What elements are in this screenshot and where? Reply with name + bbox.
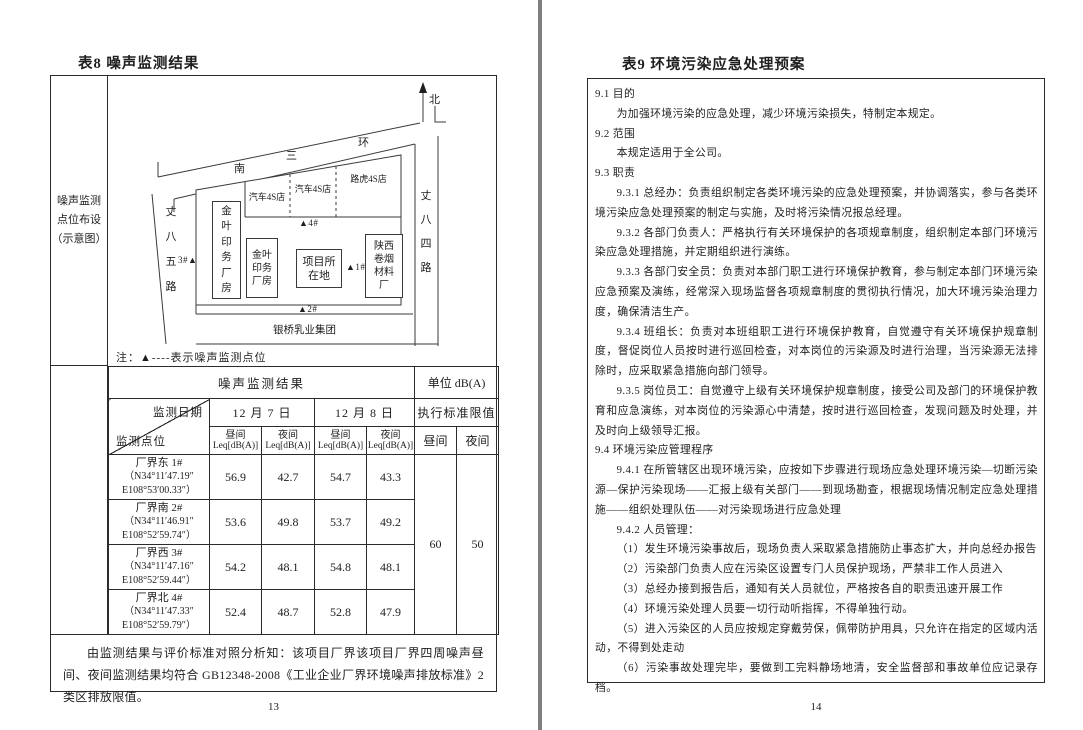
section-9-4-heading: 9.4 环境污染应管理程序 — [595, 441, 1038, 461]
point-2-cell: 厂界南 2# （N34°11′46.91″ E108°52′59.74″） — [109, 500, 210, 545]
clause-9-3-2: 9.3.2 各部门负责人：严格执行有关环境保护的各项规章制度，组织制定本部门环境… — [595, 224, 1038, 264]
north-arrow-head — [419, 82, 427, 93]
section-9-3-heading: 9.3 职责 — [595, 164, 1038, 184]
section-9-1-body: 为加强环境污染的应急处理，减少环境污染损失，特制定本规定。 — [595, 105, 1038, 125]
emergency-plan-frame: 9.1 目的 为加强环境污染的应急处理，减少环境污染损失，特制定本规定。 9.2… — [587, 78, 1045, 683]
clause-9-3-5: 9.3.5 岗位员工：自觉遵守上级有关环境保护规章制度，接受公司及部门的环境保护… — [595, 382, 1038, 441]
point-1-day2: 54.7 — [315, 455, 367, 500]
clause-9-3-1: 9.3.1 总经办：负责组织制定各类环境污染的应急处理预案，并协调落实，参与各类… — [595, 184, 1038, 224]
item-2: （2）污染部门负责人应在污染区设置专门人员保护现场，严禁非工作人员进入 — [595, 560, 1038, 580]
project-site-box: 项目所在地 — [296, 249, 342, 288]
table-header-cell: 噪声监测结果 — [109, 367, 415, 399]
subheader-day1: 昼间 Leq[dB(A)] — [210, 427, 262, 455]
limit-header: 执行标准限值 — [415, 399, 499, 427]
car-4s-shop-2: 汽车4S店 — [290, 182, 336, 195]
section-9-2-heading: 9.2 范围 — [595, 125, 1038, 145]
point-4-cell: 厂界北 4# （N34°11′47.33″ E108°52′59.79″） — [109, 590, 210, 635]
map-row-label: 噪声监测 点位布设 （示意图） — [51, 76, 108, 366]
top-road-char-huan: 环 — [358, 134, 369, 150]
monitor-point-4-marker: ▲4# — [299, 218, 318, 228]
point-2-day2: 53.7 — [315, 500, 367, 545]
jinye-printing-building-tall: 金叶印务厂房 — [212, 201, 241, 299]
monitor-point-3-marker: 3#▲ — [178, 255, 197, 265]
point-3-cell: 厂界西 3# （N34°11′47.16″ E108°52′59.44″） — [109, 545, 210, 590]
top-road-char-san: 三 — [286, 147, 297, 163]
unit-cell: 单位 dB(A) — [415, 367, 499, 399]
monitor-point-1-marker: ▲1# — [346, 262, 365, 272]
north-label: 北 — [429, 91, 440, 107]
limit-day-header: 昼间 — [415, 427, 457, 455]
map-row-label-line1: 噪声监测 — [57, 192, 101, 211]
date-header-dec8: 12 月 8 日 — [315, 399, 415, 427]
point-4-night2: 47.9 — [367, 590, 415, 635]
section-9-1-heading: 9.1 目的 — [595, 85, 1038, 105]
jinye-printing-building-small: 金叶印务厂房 — [246, 238, 278, 298]
item-3: （3）总经办接到报告后，通知有关人员就位，严格按各自的职责迅速开展工作 — [595, 580, 1038, 600]
item-5: （5）进入污染区的人员应按规定穿戴劳保，佩带防护用具，只允许在指定的区域内活动，… — [595, 620, 1038, 660]
road-corner-mark — [435, 106, 446, 122]
date-header-dec7: 12 月 7 日 — [210, 399, 315, 427]
point-4-day1: 52.4 — [210, 590, 262, 635]
noise-result-table-frame: 噪声监测 点位布设 （示意图） — [50, 75, 497, 692]
scanned-document-spread: 表8 噪声监测结果 噪声监测 点位布设 （示意图） — [0, 0, 1083, 730]
point-4-day2: 52.8 — [315, 590, 367, 635]
right-page-title: 表9 环境污染应急处理预案 — [622, 53, 805, 74]
landrover-4s-shop: 路虎4S店 — [336, 172, 401, 185]
monitor-point-2-marker: ▲2# — [298, 304, 317, 314]
left-road-label: 丈八五路 — [164, 200, 178, 300]
diagonal-point-label: 监测点位 — [116, 433, 166, 449]
dairy-group-label: 银桥乳业集团 — [196, 322, 413, 337]
clause-9-4-1: 9.4.1 在所管辖区出现环境污染，应按如下步骤进行现场应急处理环境污染—切断污… — [595, 461, 1038, 520]
point-2-day1: 53.6 — [210, 500, 262, 545]
section-9-2-body: 本规定适用于全公司。 — [595, 144, 1038, 164]
empty-label-cell — [51, 366, 108, 634]
table-header-title: 噪声监测结果 — [218, 377, 305, 391]
point-3-day1: 54.2 — [210, 545, 262, 590]
point-1-cell: 厂界东 1# （N34°11′47.19″ E108°53′00.33″） — [109, 455, 210, 500]
point-1-night2: 43.3 — [367, 455, 415, 500]
point-3-night1: 48.1 — [262, 545, 315, 590]
right-road-label: 丈八四路 — [419, 184, 433, 280]
left-page-title: 表8 噪声监测结果 — [78, 52, 199, 73]
point-4-night1: 48.7 — [262, 590, 315, 635]
noise-results-table: 噪声监测结果 单位 dB(A) 监测日期 监测点位 12 月 7 日 12 月 … — [108, 366, 499, 635]
page-divider — [538, 0, 542, 730]
diagonal-header-cell: 监测日期 监测点位 — [109, 399, 210, 455]
item-6: （6）污染事故处理完毕，要做到工完料静场地清，安全监督部和事故单位应记录存档。 — [595, 659, 1038, 699]
analysis-conclusion: 由监测结果与评价标准对照分析知：该项目厂界该项目厂界四周噪声昼间、夜间监测结果均… — [51, 634, 496, 692]
limit-night-value: 50 — [457, 455, 499, 635]
table-row: 厂界东 1# （N34°11′47.19″ E108°53′00.33″） 56… — [109, 455, 499, 500]
clause-9-3-4: 9.3.4 班组长：负责对本班组职工进行环境保护教育，自觉遵守有关环境保护规章制… — [595, 323, 1038, 382]
map-legend-note: 注：▲----表示噪声监测点位 — [116, 349, 267, 365]
top-road-char-nan: 南 — [234, 160, 245, 176]
car-4s-shop-1: 汽车4S店 — [244, 190, 290, 203]
point-1-night1: 42.7 — [262, 455, 315, 500]
map-row-label-line3: （示意图） — [52, 230, 107, 249]
item-1: （1）发生环境污染事故后，现场负责人采取紧急措施防止事态扩大，并向总经办报告 — [595, 540, 1038, 560]
clause-9-4-2: 9.4.2 人员管理： — [595, 521, 1038, 541]
point-2-night1: 49.8 — [262, 500, 315, 545]
point-2-night2: 49.2 — [367, 500, 415, 545]
clause-9-3-3: 9.3.3 各部门安全员：负责对本部门职工进行环境保护教育，参与制定本部门环境污… — [595, 263, 1038, 322]
subheader-night1: 夜间 Leq[dB(A)] — [262, 427, 315, 455]
map-row-label-line2: 点位布设 — [57, 211, 101, 230]
left-page-number: 13 — [50, 701, 497, 713]
diagonal-date-label: 监测日期 — [153, 404, 203, 420]
emergency-plan-body: 9.1 目的 为加强环境污染的应急处理，减少环境污染损失，特制定本规定。 9.2… — [588, 79, 1044, 699]
subheader-night2: 夜间 Leq[dB(A)] — [367, 427, 415, 455]
site-map: 北 南 三 环 丈八五路 丈八四路 汽车4S店 汽车4S店 路虎4S店 金叶印务… — [108, 76, 498, 366]
subheader-day2: 昼间 Leq[dB(A)] — [315, 427, 367, 455]
item-4: （4）环境污染处理人员要一切行动听指挥，不得单独行动。 — [595, 600, 1038, 620]
point-3-night2: 48.1 — [367, 545, 415, 590]
point-1-day1: 56.9 — [210, 455, 262, 500]
limit-day-value: 60 — [415, 455, 457, 635]
limit-night-header: 夜间 — [457, 427, 499, 455]
shaanxi-tobacco-material-factory: 陕西卷烟材料厂 — [365, 234, 403, 298]
point-3-day2: 54.8 — [315, 545, 367, 590]
right-page-number: 14 — [587, 701, 1045, 713]
